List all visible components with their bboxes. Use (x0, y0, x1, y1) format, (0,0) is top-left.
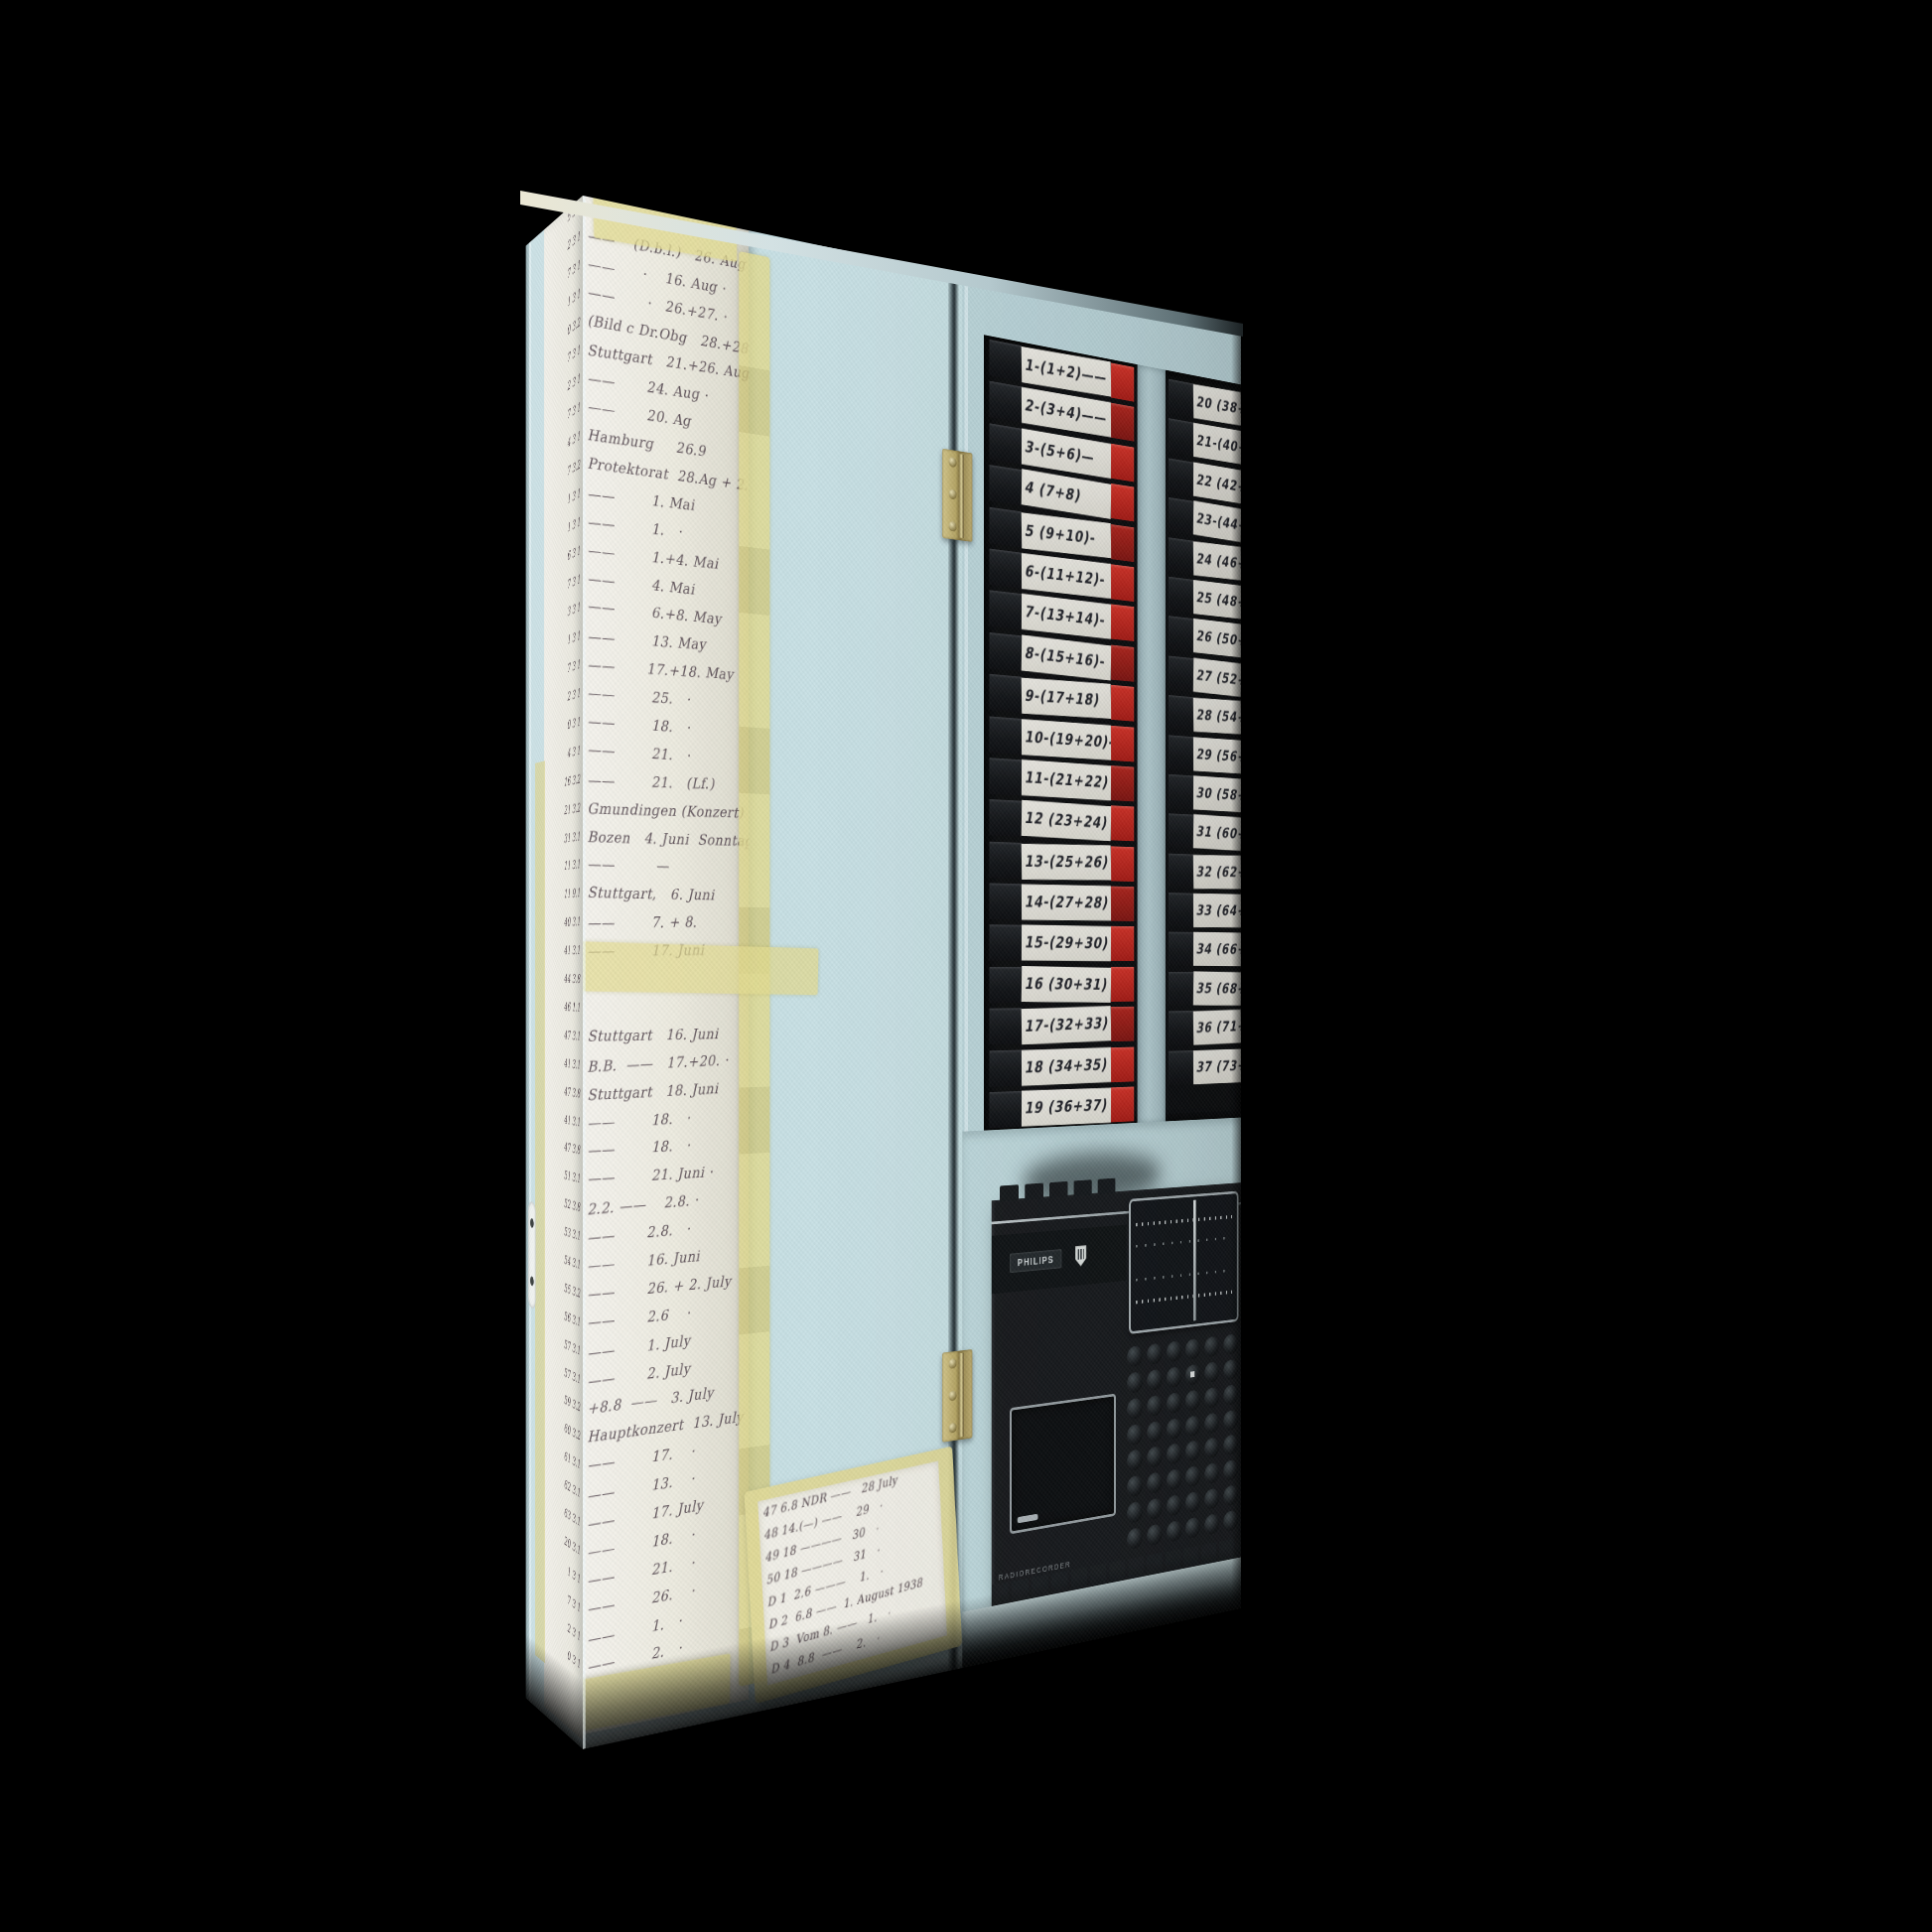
cassette-row: 32 (62+63) (1169, 853, 1241, 889)
cassette-red-block (1111, 644, 1135, 681)
ledger-line: Bozen 4. Juni Sonntag (583, 827, 749, 859)
cassette-label: 15-(29+30) (1022, 925, 1111, 962)
speaker-knob (1185, 1440, 1200, 1461)
cassette-spine (1169, 932, 1193, 966)
speaker-knob (1204, 1487, 1219, 1509)
cassette-spine (990, 423, 1022, 464)
speaker-knob (1127, 1501, 1143, 1524)
cassette-spine (990, 1008, 1022, 1044)
cassette-door (1010, 1394, 1116, 1535)
ledger-line: Stuttgart, 6. Juni (583, 884, 749, 915)
cassette-spine (1169, 537, 1193, 575)
ledger-line (583, 997, 749, 1028)
cassette-spine (1169, 1011, 1193, 1045)
cassette-row: 11-(21+22) (990, 758, 1135, 801)
cassette-red-block (1111, 887, 1135, 921)
cassette-label: 18 (34+35) (1022, 1047, 1111, 1086)
speaker-knob (1147, 1523, 1162, 1546)
dial-scale (1136, 1236, 1232, 1247)
speaker-knob (1204, 1438, 1219, 1459)
cassette-label: 6-(11+12)- (1022, 553, 1111, 599)
speaker-knob (1147, 1497, 1162, 1520)
cassette-spine (990, 381, 1022, 423)
cassette-spine (990, 632, 1022, 671)
speaker-knob (1204, 1336, 1219, 1358)
cassette-red-block (1111, 605, 1135, 642)
cassette-spine (990, 841, 1022, 878)
speaker-knob (1147, 1471, 1162, 1494)
speaker-knob (1167, 1418, 1181, 1440)
side-tape-strip (535, 760, 545, 1663)
cassette-spine (1169, 735, 1193, 770)
hanging-bracket (528, 1200, 535, 1310)
philips-nameplate: PHILIPS (1010, 1249, 1061, 1273)
dial-scale (1136, 1269, 1232, 1281)
speaker-knob (1185, 1415, 1200, 1437)
speaker-knob (1127, 1371, 1143, 1393)
cassette-spine (990, 758, 1022, 795)
cassette-spine (1169, 655, 1193, 692)
right-edge-shadow (1231, 332, 1241, 1610)
cassette-spine (990, 465, 1022, 505)
speaker-knob (1185, 1389, 1200, 1411)
radio-key (1074, 1179, 1092, 1196)
speaker-knob (1204, 1361, 1219, 1383)
side-code: 41 3.1 (544, 943, 583, 972)
speaker-knob-grid (1125, 1331, 1240, 1554)
cassette-spine (990, 925, 1022, 961)
side-code: 40 3.1 (544, 914, 583, 944)
cassette-label: 17-(32+33) (1022, 1006, 1111, 1044)
cassette-row: 17-(32+33) (990, 1007, 1135, 1044)
cassette-label: 19 (36+37) (1022, 1088, 1111, 1127)
side-code: 44 3.8 (544, 972, 583, 1001)
cassette-red-block (1111, 403, 1135, 442)
cassette-row: 12 (23+24) (990, 799, 1135, 841)
cassette-spine (990, 716, 1022, 755)
cassette-spine (1169, 853, 1193, 888)
side-code: 11 9.1 (544, 886, 583, 916)
canvas-side-face: 5 3 12 3 17 3 11 3 10 3.27 3 12 3 17 3 1… (525, 196, 583, 1749)
speaker-knob (1185, 1516, 1200, 1539)
cassette-red-block (1111, 1046, 1135, 1082)
radio-key (1098, 1178, 1116, 1195)
speaker-knob (1147, 1369, 1162, 1391)
cassette-spine (1169, 458, 1193, 495)
speaker-knob (1185, 1465, 1200, 1488)
cassette-row: 14-(27+28) (990, 884, 1135, 922)
cassette-spine (1169, 379, 1193, 418)
cassette-spine (990, 884, 1022, 920)
cassette-row: 23-(44+45) (1169, 497, 1241, 542)
cassette-red-block (1111, 926, 1135, 961)
cassette-row: 25 (48+49) (1169, 577, 1241, 620)
cassette-spine (1169, 418, 1193, 457)
speaker-knob (1167, 1494, 1181, 1517)
cassette-red-block (1111, 362, 1135, 401)
speaker-knob (1204, 1513, 1219, 1536)
speaker-knob (1147, 1446, 1162, 1468)
speaker-knob (1185, 1338, 1200, 1360)
cassette-spine (1169, 695, 1193, 731)
side-code: 47 3.1 (544, 1027, 583, 1058)
side-code-column: 5 3 12 3 17 3 11 3 10 3.27 3 12 3 17 3 1… (544, 196, 583, 1689)
cassette-spine (990, 1049, 1022, 1086)
ledger-line: —— — (583, 856, 749, 888)
radio-brand-band: PHILIPS (992, 1225, 1127, 1295)
cassette-spine (990, 799, 1022, 837)
cassette-label: 16 (30+31) (1022, 966, 1111, 1003)
rack-divider (1138, 364, 1166, 1124)
cassette-row: 22 (42+43) (1169, 458, 1241, 503)
cassette-spine (1169, 497, 1193, 535)
cassette-rack: 1-(1+2)——2-(3+4)——3-(5+6)—4 (7+8)5 (9+10… (984, 335, 1241, 1132)
speaker-knob (1167, 1341, 1181, 1363)
radio-key (1000, 1184, 1019, 1201)
cassette-red-block (1111, 483, 1135, 521)
speaker-knob (1127, 1423, 1143, 1446)
cassette-spine (990, 340, 1022, 381)
cassette-spine (990, 548, 1022, 588)
cassette-red-block (1111, 765, 1135, 801)
speaker-knob (1127, 1397, 1143, 1420)
ledger-line: —— 7. + 8. (583, 913, 749, 943)
canvas-front-face: 1-(1+2)——2-(3+4)——3-(5+6)—4 (7+8)5 (9+10… (583, 196, 1241, 1749)
cassette-red-block (1111, 1086, 1135, 1122)
cassette-row: 21-(40+41) (1169, 418, 1241, 465)
cassette-row: 16 (30+31) (990, 967, 1135, 1003)
cassette-row: 36 (71+72) (1169, 1010, 1241, 1045)
cassette-label: 14-(27+28) (1022, 885, 1111, 921)
cassette-row: 33 (64+65) (1169, 893, 1241, 927)
ledger-line: Gmundingen (Konzert) (583, 799, 749, 832)
speaker-knob (1167, 1468, 1181, 1491)
brass-hinge-top (942, 449, 972, 542)
cassette-row: 27 (52+53) (1169, 655, 1241, 696)
side-paper-margin: 5 3 12 3 17 3 11 3 10 3.27 3 12 3 17 3 1… (544, 196, 583, 1740)
cassette-spine (1169, 893, 1193, 927)
canvas-print: 1-(1+2)——2-(3+4)——3-(5+6)—4 (7+8)5 (9+10… (583, 196, 1241, 1749)
cassette-row: 31 (60+61) (1169, 814, 1241, 851)
cassette-spine (1169, 814, 1193, 849)
speaker-knob (1127, 1449, 1143, 1472)
cassette-row: 26 (50+51) (1169, 616, 1241, 657)
dial-needle (1193, 1200, 1195, 1321)
cassette-spine (1169, 577, 1193, 614)
cassette-label: 5 (9+10)- (1022, 512, 1111, 558)
side-edge-highlight (529, 241, 531, 1703)
ledger-line: —— 21. (Lf.) (583, 771, 749, 804)
speaker-knob (1204, 1387, 1219, 1409)
cassette-row: 18 (34+35) (990, 1046, 1135, 1086)
cassette-red-block (1111, 524, 1135, 562)
cassette-spine (990, 967, 1022, 1003)
tape-seam-patch (583, 941, 818, 996)
cassette-label: 10-(19+20)- (1022, 719, 1111, 759)
fold-highlight (583, 196, 586, 1749)
cassette-label: 12 (23+24) (1022, 800, 1111, 841)
cassette-row: 13-(25+26) (990, 841, 1135, 881)
radio-tuning-dial (1129, 1191, 1238, 1334)
speaker-knob (1167, 1520, 1181, 1543)
speaker-knob (1204, 1412, 1219, 1434)
cassette-row: 8-(15+16)- (990, 632, 1135, 682)
photo-scene: 1-(1+2)——2-(3+4)——3-(5+6)—4 (7+8)5 (9+10… (0, 0, 1932, 1932)
dial-scale (1136, 1291, 1232, 1305)
dial-scale (1136, 1215, 1232, 1226)
cassette-row: 30 (58+59) (1169, 774, 1241, 812)
speaker-knob (1127, 1527, 1143, 1550)
cassette-row: 34 (66+67) (1169, 932, 1241, 966)
cassette-row: 28 (54+55) (1169, 695, 1241, 735)
cassette-row: 19 (36+37) (990, 1086, 1135, 1128)
cassette-red-block (1111, 444, 1135, 483)
cassette-spine (990, 591, 1022, 630)
cassette-red-block (1111, 725, 1135, 761)
cassette-spine (990, 1091, 1022, 1129)
side-code: 46 1.1 (544, 999, 583, 1029)
speaker-knob (1185, 1364, 1200, 1386)
speaker-knob (1204, 1462, 1219, 1484)
speaker-knob (1167, 1392, 1181, 1414)
speaker-knob (1127, 1475, 1143, 1498)
cassette-label: 11-(21+22) (1022, 759, 1111, 800)
cassette-red-block (1111, 967, 1135, 1002)
side-content: 5 3 12 3 17 3 11 3 10 3.27 3 12 3 17 3 1… (525, 196, 583, 1749)
photo-front-content: 1-(1+2)——2-(3+4)——3-(5+6)—4 (7+8)5 (9+10… (583, 196, 1241, 1749)
radio-key (1049, 1181, 1067, 1198)
cassette-spine (1169, 1050, 1193, 1085)
cassette-spine (1169, 616, 1193, 652)
speaker-knob (1185, 1491, 1200, 1514)
cassette-red-block (1111, 564, 1135, 602)
philips-shield-icon (1075, 1245, 1086, 1267)
cassette-red-block (1111, 1007, 1135, 1041)
cassette-red-block (1111, 685, 1135, 722)
cassette-row: 9-(17+18) (990, 674, 1135, 722)
cassette-red-block (1111, 806, 1135, 842)
cassette-row: 29 (56+57) (1169, 735, 1241, 773)
cassette-door-logo (1018, 1514, 1038, 1524)
cassette-column-2: 20 (38+39)21-(40+41)22 (42+43)23-(44+45)… (1169, 379, 1241, 1091)
cassette-row: 37 (73+74) (1169, 1048, 1241, 1084)
speaker-knob (1127, 1345, 1143, 1367)
cassette-label: 7-(13+14)- (1022, 594, 1111, 639)
speaker-knob (1147, 1395, 1162, 1417)
cassette-spine (1169, 972, 1193, 1006)
speaker-knob (1147, 1421, 1162, 1444)
cassette-label: 9-(17+18) (1022, 678, 1111, 719)
brass-hinge-bottom (942, 1349, 972, 1443)
speaker-knob (1167, 1443, 1181, 1465)
speaker-knob (1167, 1366, 1181, 1388)
cassette-label: 8-(15+16)- (1022, 634, 1111, 680)
cassette-row: 24 (46+47) (1169, 537, 1241, 581)
cassette-row: 20 (38+39) (1169, 379, 1241, 427)
cassette-label: 13-(25+26) (1022, 844, 1111, 881)
cassette-row: 35 (68+69) (1169, 972, 1241, 1007)
cassette-column-1: 1-(1+2)——2-(3+4)——3-(5+6)—4 (7+8)5 (9+10… (990, 340, 1135, 1133)
cassette-spine (990, 506, 1022, 547)
cassette-red-block (1111, 846, 1135, 882)
cassette-row: 15-(29+30) (990, 925, 1135, 962)
radio-key (1025, 1183, 1043, 1200)
cassette-spine (990, 674, 1022, 713)
cassette-spine (1169, 774, 1193, 810)
side-code: 11 3.1 (544, 857, 583, 889)
cassette-row: 10-(19+20)- (990, 716, 1135, 761)
speaker-knob (1147, 1343, 1162, 1365)
philips-radiorecorder: PHILIPS RADIORECORDER (992, 1182, 1241, 1606)
